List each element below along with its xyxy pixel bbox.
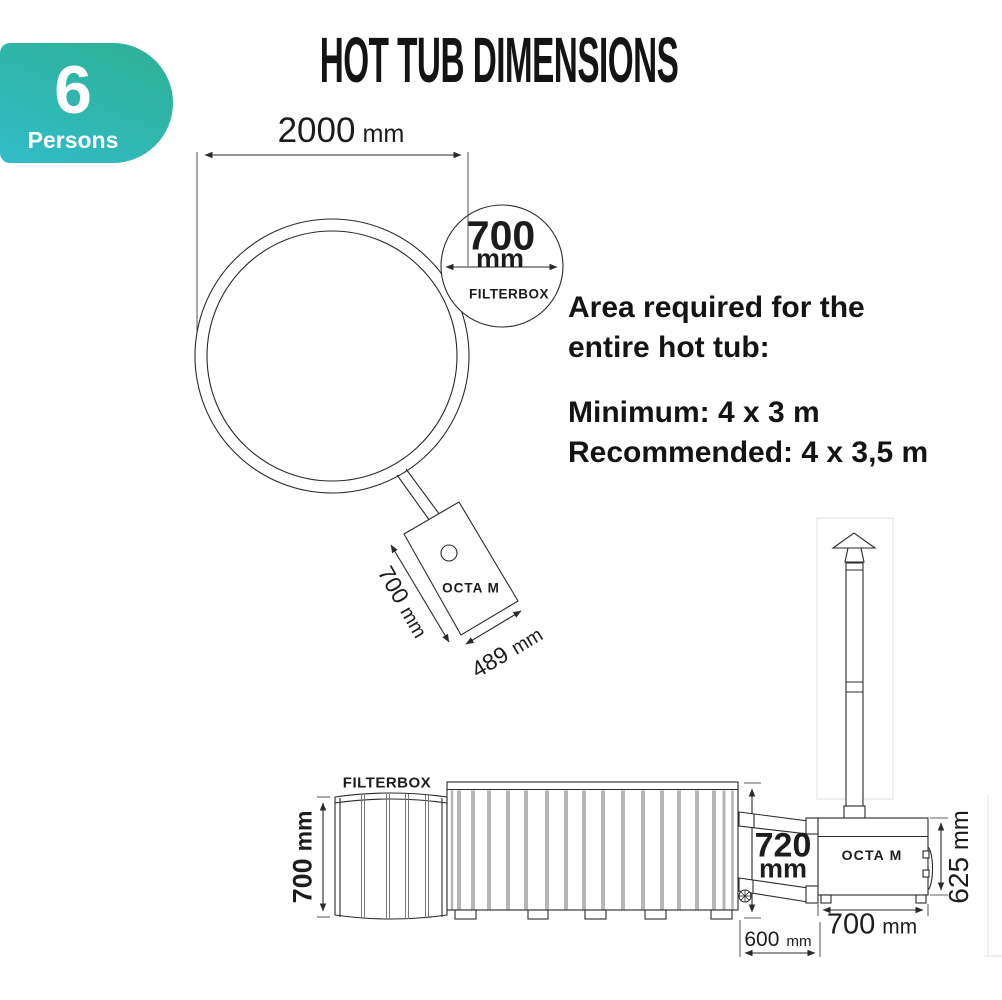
connection-height-unit: mm (759, 854, 807, 885)
side-view-filterbox-height-dimension (317, 797, 330, 917)
side-view-chimney (833, 533, 875, 819)
page-title: HOT TUB DIMENSIONS (320, 23, 679, 97)
top-view-diameter-dimension (197, 152, 461, 332)
side-view-filterbox (335, 793, 447, 919)
filterbox-caption-side: FILTERBOX (343, 775, 431, 792)
area-requirements-values: Minimum: 4 x 3 m Recommended: 4 x 3,5 m (568, 393, 928, 473)
area-minimum: Minimum: 4 x 3 m (568, 393, 928, 433)
stove-offset-label: 600mm (744, 928, 811, 952)
top-view-stove-connector (397, 469, 440, 521)
filterbox-caption-top: FILTERBOX (469, 287, 549, 302)
stove-width-side-label: 700mm (827, 909, 917, 942)
stove-name-side-view: OCTA M (842, 847, 903, 863)
persons-badge: 6 Persons (0, 43, 173, 163)
persons-label: Persons (0, 127, 146, 153)
persons-count: 6 (0, 55, 146, 125)
filterbox-diameter-unit: mm (476, 244, 524, 275)
stove-name-top-view: OCTA M (442, 581, 500, 596)
top-view-tub (195, 219, 469, 493)
filterbox-height-label: 700mm (288, 811, 319, 904)
tub-diameter-label: 2000mm (278, 111, 405, 151)
area-requirements-heading: Area required for the entire hot tub: (568, 288, 865, 368)
side-view-tub (447, 782, 738, 919)
hot-tub-dimensions-infographic: HOT TUB DIMENSIONS 6 Persons 2000mm 700 … (0, 0, 1002, 1000)
area-recommended: Recommended: 4 x 3,5 m (568, 433, 928, 473)
stove-height-label: 625mm (943, 810, 975, 903)
